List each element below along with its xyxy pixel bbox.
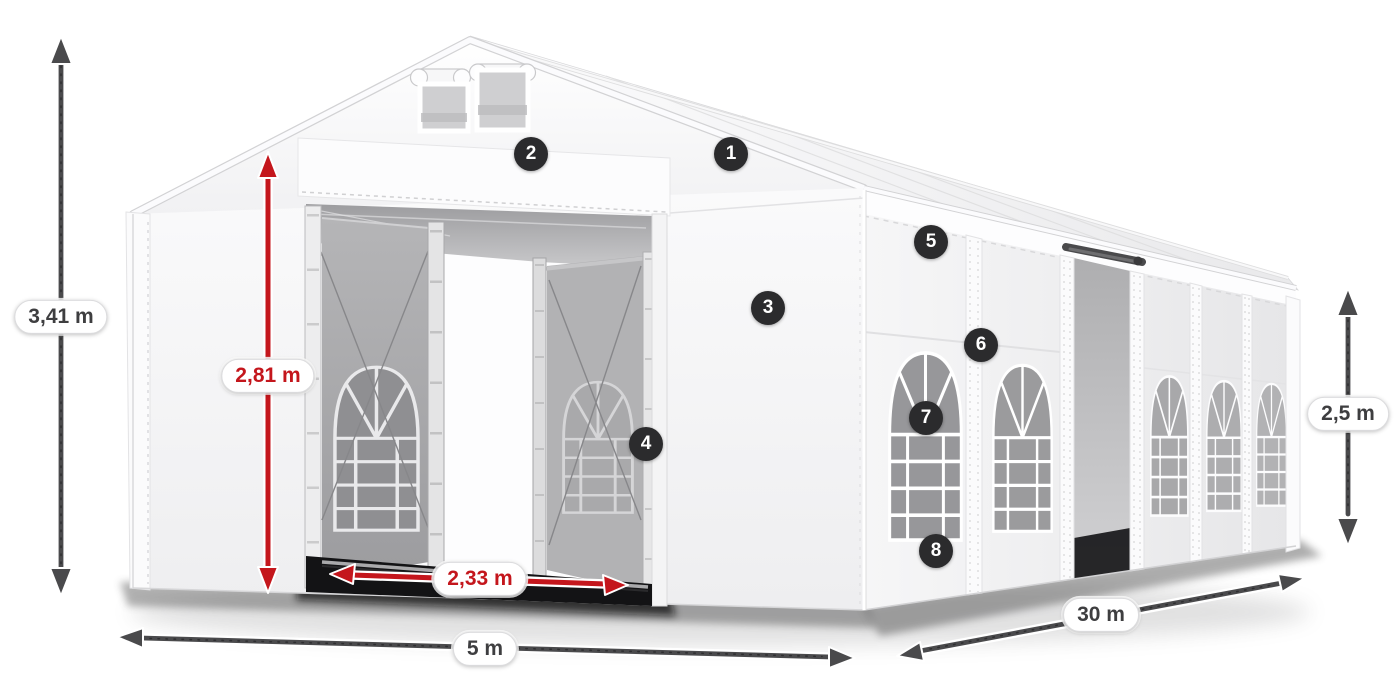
callout-5[interactable]: 5 (914, 225, 948, 259)
callout-7[interactable]: 7 (909, 401, 943, 435)
dimension-side-length: 30 m (1063, 598, 1139, 632)
gable-vent-window-right (470, 64, 536, 130)
dimension-side-height: 2,5 m (1307, 397, 1389, 431)
dimension-total-height: 3,41 m (14, 300, 107, 334)
callout-6[interactable]: 6 (964, 328, 998, 362)
callout-4[interactable]: 4 (629, 427, 663, 461)
front-entrance (305, 204, 667, 606)
tent-diagram: 3,41 m 2,81 m 2,33 m 5 m 30 m 2,5 m 1 2 … (0, 0, 1400, 700)
entrance-door-leaf-near (314, 218, 436, 580)
entrance-door-leaf-far (533, 256, 657, 592)
callout-8[interactable]: 8 (919, 534, 953, 568)
callout-3[interactable]: 3 (751, 291, 785, 325)
dimension-front-width: 5 m (453, 632, 517, 666)
tent-illustration (0, 0, 1400, 700)
dimension-entrance-width: 2,33 m (433, 562, 526, 596)
callout-1[interactable]: 1 (714, 137, 748, 171)
callout-2[interactable]: 2 (514, 137, 548, 171)
gable-vent-window-left (411, 69, 471, 131)
dimension-entrance-height: 2,81 m (221, 359, 314, 393)
